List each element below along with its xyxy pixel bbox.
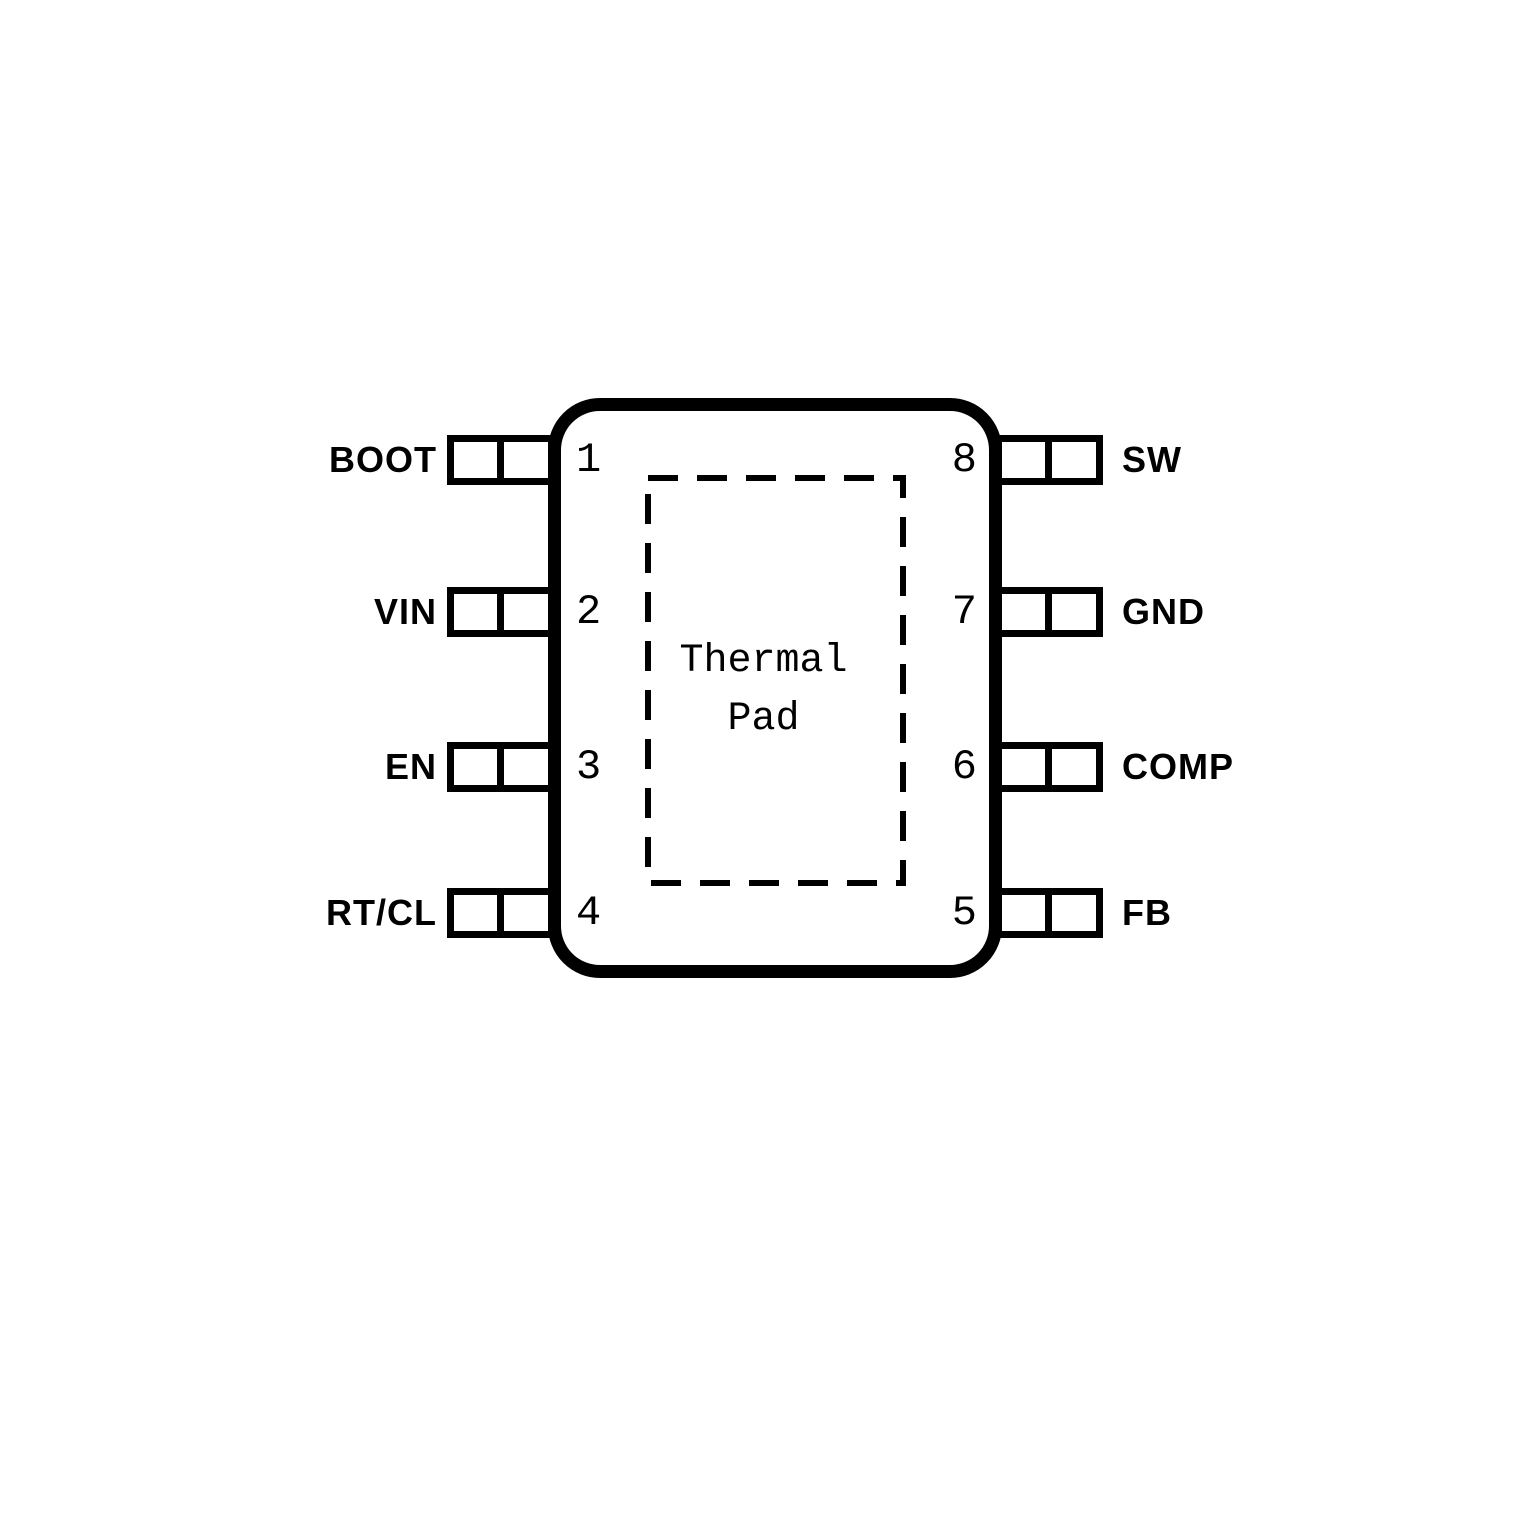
pin2-number: 2 [576, 587, 656, 637]
pin8-number: 8 [897, 435, 977, 485]
pin1-number: 1 [576, 435, 656, 485]
pin4-number: 4 [576, 888, 656, 938]
pin1-pad-divider [497, 442, 504, 478]
pin8-pad [995, 435, 1103, 485]
pin7-pad-divider [1045, 594, 1052, 630]
pin-label-boot: BOOT [100, 435, 437, 485]
pin8-pad-divider [1045, 442, 1052, 478]
pin6-pad-divider [1045, 749, 1052, 785]
pin5-pad-divider [1045, 895, 1052, 931]
pin4-pad-divider [497, 895, 504, 931]
pin-label-en: EN [100, 742, 437, 792]
pin-label-fb: FB [1122, 888, 1462, 938]
pin2-pad-divider [497, 594, 504, 630]
pin4-pad [447, 888, 555, 938]
pin7-number: 7 [897, 587, 977, 637]
pin3-pad-divider [497, 749, 504, 785]
pin-label-comp: COMP [1122, 742, 1462, 792]
pin-label-gnd: GND [1122, 587, 1462, 637]
pin-label-sw: SW [1122, 435, 1462, 485]
thermal-pad-label-line2: Pad [633, 700, 894, 740]
pin3-number: 3 [576, 742, 656, 792]
pin5-pad [995, 888, 1103, 938]
pin5-number: 5 [897, 888, 977, 938]
pin-label-vin: VIN [100, 587, 437, 637]
pinout-diagram: BOOT VIN EN RT/CL SW GND COMP FB Thermal… [0, 0, 1535, 1535]
thermal-pad-label-line1: Thermal [633, 642, 894, 682]
pin7-pad [995, 587, 1103, 637]
pin-label-rtcl: RT/CL [100, 888, 437, 938]
pin6-pad [995, 742, 1103, 792]
pin6-number: 6 [897, 742, 977, 792]
pin2-pad [447, 587, 555, 637]
pin3-pad [447, 742, 555, 792]
pin1-pad [447, 435, 555, 485]
